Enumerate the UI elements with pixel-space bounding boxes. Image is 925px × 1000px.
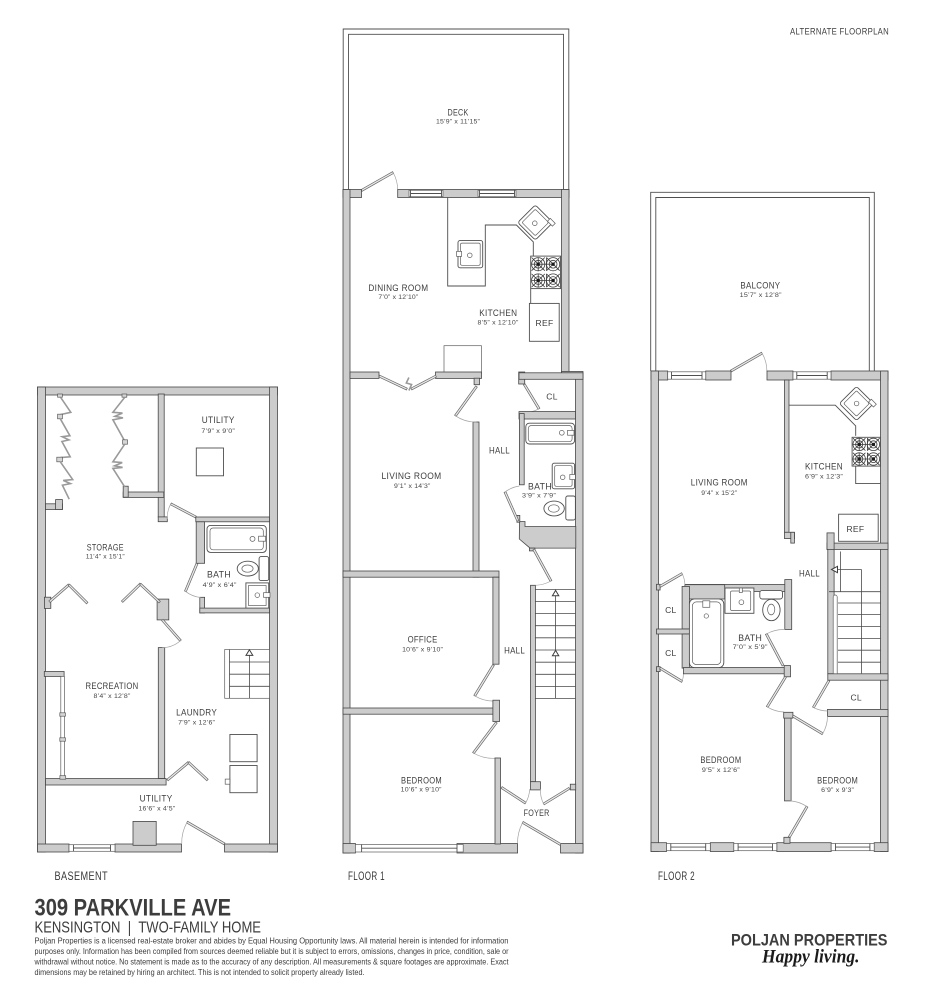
- svg-text:RECREATION: RECREATION: [86, 681, 139, 691]
- svg-text:CL: CL: [665, 605, 676, 615]
- svg-text:9’5” x 12’6”: 9’5” x 12’6”: [702, 767, 741, 774]
- svg-text:REF: REF: [536, 318, 554, 328]
- svg-text:withdrawal without notice. No: withdrawal without notice. No statement …: [34, 957, 509, 967]
- svg-text:3’9” x 7’9”: 3’9” x 7’9”: [522, 492, 557, 499]
- svg-text:BATH: BATH: [207, 570, 231, 580]
- svg-text:7’9” x 12’6”: 7’9” x 12’6”: [178, 719, 216, 726]
- svg-text:9’4” x 15’2”: 9’4” x 15’2”: [701, 490, 738, 497]
- svg-text:16’6” x 4’5”: 16’6” x 4’5”: [138, 805, 176, 812]
- svg-text:STORAGE: STORAGE: [87, 543, 124, 553]
- svg-text:BATH: BATH: [528, 482, 552, 492]
- svg-text:10’6” x 9’10”: 10’6” x 9’10”: [401, 786, 443, 793]
- svg-text:KITCHEN: KITCHEN: [805, 462, 843, 472]
- svg-text:7’0” x 12’10”: 7’0” x 12’10”: [378, 294, 419, 301]
- svg-text:15’7” x 12’8”: 15’7” x 12’8”: [740, 292, 783, 299]
- svg-text:6’9” x 9’3”: 6’9” x 9’3”: [821, 787, 855, 794]
- svg-text:7’0” x 5’9”: 7’0” x 5’9”: [733, 644, 769, 651]
- svg-text:DECK: DECK: [448, 108, 469, 118]
- svg-text:FLOOR 1: FLOOR 1: [348, 871, 385, 883]
- svg-text:6’9” x 12’3”: 6’9” x 12’3”: [805, 474, 844, 481]
- svg-text:KENSINGTON | TWO-FAMILY HOME: KENSINGTON | TWO-FAMILY HOME: [35, 920, 262, 937]
- svg-text:FOYER: FOYER: [524, 808, 550, 818]
- svg-text:CL: CL: [850, 692, 861, 702]
- svg-text:LIVING ROOM: LIVING ROOM: [382, 471, 442, 481]
- svg-text:8’5” x 12’10”: 8’5” x 12’10”: [478, 319, 520, 326]
- svg-text:DINING ROOM: DINING ROOM: [368, 283, 428, 293]
- svg-text:BEDROOM: BEDROOM: [700, 755, 741, 765]
- svg-text:KITCHEN: KITCHEN: [479, 308, 517, 318]
- svg-text:ALTERNATE FLOORPLAN: ALTERNATE FLOORPLAN: [790, 27, 889, 37]
- svg-text:HALL: HALL: [504, 645, 525, 655]
- svg-text:BALCONY: BALCONY: [740, 281, 780, 291]
- svg-text:LAUNDRY: LAUNDRY: [176, 707, 217, 717]
- svg-text:11’4” x 15’1”: 11’4” x 15’1”: [86, 554, 126, 561]
- svg-text:Poljan Properties is a license: Poljan Properties is a licensed real-est…: [35, 936, 509, 946]
- svg-text:BEDROOM: BEDROOM: [401, 775, 442, 785]
- svg-text:CL: CL: [665, 648, 676, 658]
- svg-text:LIVING ROOM: LIVING ROOM: [691, 478, 748, 488]
- svg-text:BASEMENT: BASEMENT: [55, 871, 109, 883]
- svg-text:OFFICE: OFFICE: [408, 635, 438, 645]
- svg-text:HALL: HALL: [799, 568, 820, 578]
- svg-text:8’4” x 12’8”: 8’4” x 12’8”: [94, 693, 132, 700]
- svg-text:CL: CL: [546, 392, 557, 402]
- svg-text:7’9” x 9’0”: 7’9” x 9’0”: [201, 428, 235, 435]
- svg-text:BATH: BATH: [738, 633, 762, 643]
- svg-text:15’9” x 11’15”: 15’9” x 11’15”: [436, 119, 481, 126]
- svg-text:Happy living.: Happy living.: [761, 947, 859, 968]
- svg-text:dimensions may be retained by: dimensions may be retained by hiring an …: [35, 967, 365, 977]
- svg-text:REF: REF: [846, 524, 864, 534]
- svg-text:UTILITY: UTILITY: [140, 794, 173, 804]
- svg-text:10’6” x 9’10”: 10’6” x 9’10”: [402, 647, 444, 654]
- svg-text:9’1” x 14’3”: 9’1” x 14’3”: [394, 483, 431, 490]
- svg-text:309 PARKVILLE AVE: 309 PARKVILLE AVE: [35, 895, 232, 922]
- svg-text:BEDROOM: BEDROOM: [817, 776, 858, 786]
- svg-text:purposes only. Information has: purposes only. Information has been comp…: [35, 946, 509, 956]
- svg-text:UTILITY: UTILITY: [202, 415, 235, 425]
- svg-text:FLOOR 2: FLOOR 2: [658, 871, 695, 883]
- svg-text:HALL: HALL: [489, 446, 510, 456]
- svg-text:4’9” x 6’4”: 4’9” x 6’4”: [203, 582, 238, 589]
